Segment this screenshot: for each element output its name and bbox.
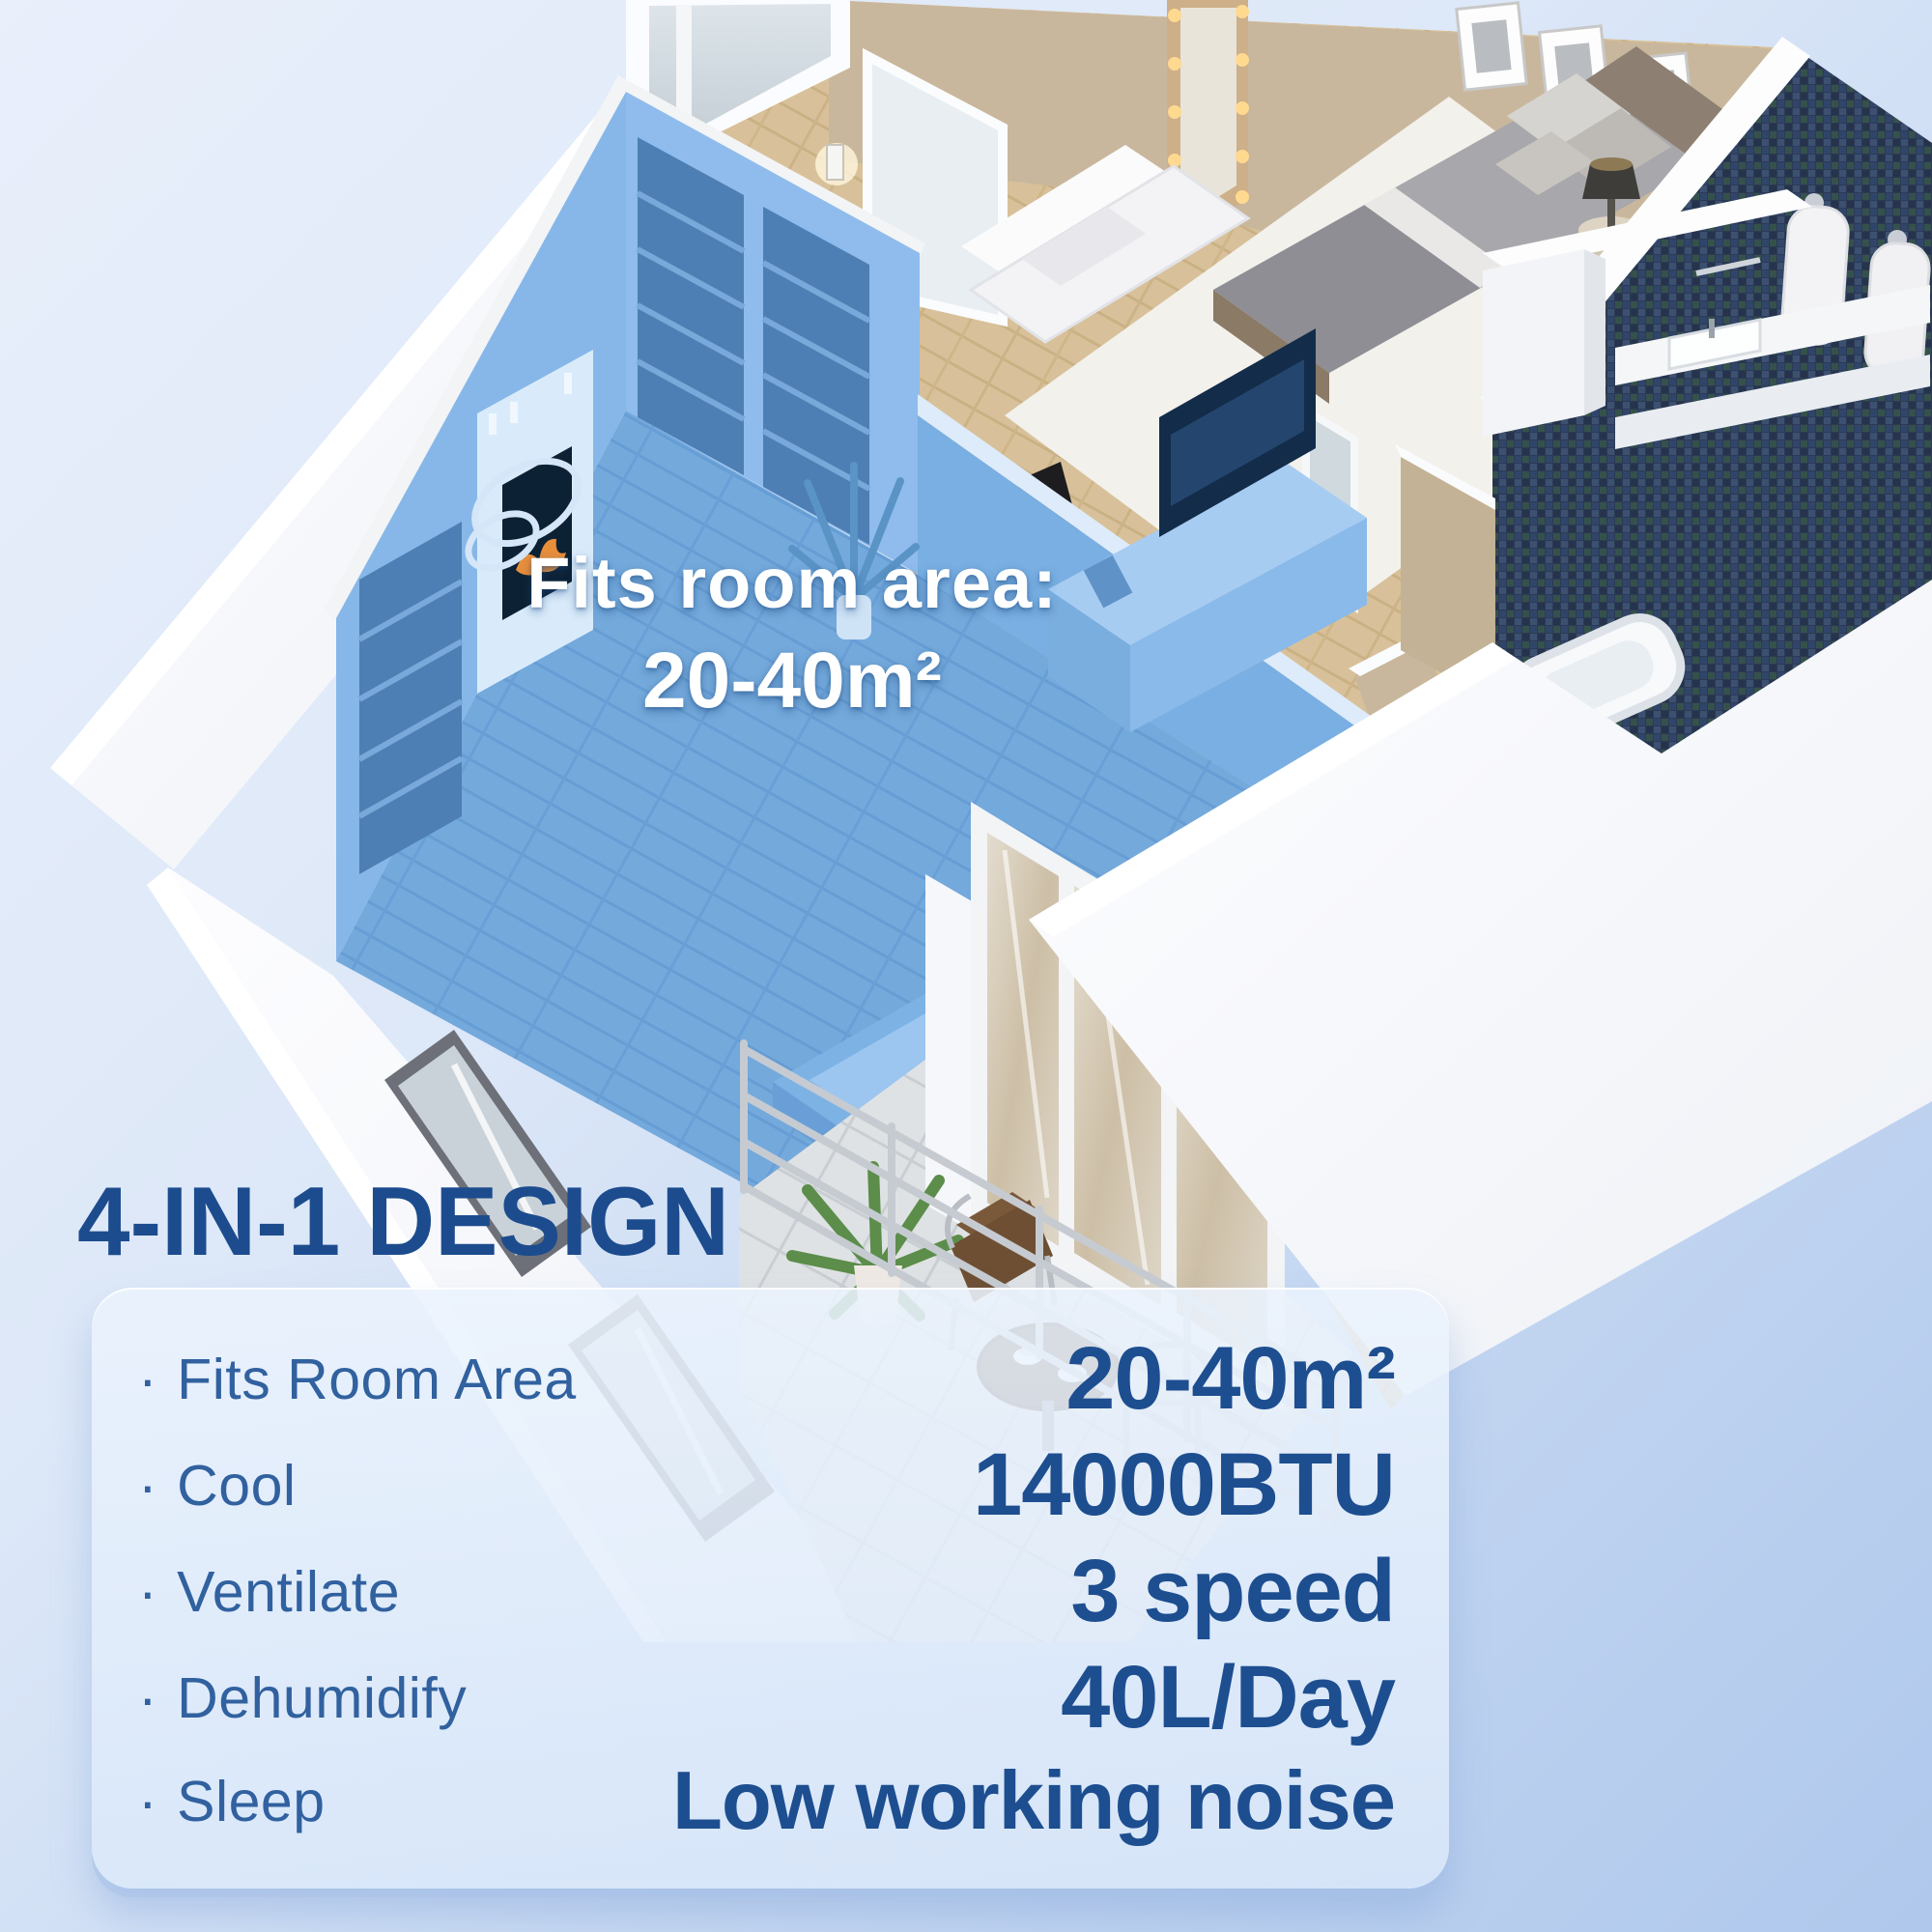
feature-value: 14000BTU — [973, 1435, 1395, 1536]
wall-sconce — [815, 143, 858, 185]
feature-label: ·Fits Room Area — [138, 1347, 577, 1412]
feature-label-text: Dehumidify — [177, 1665, 467, 1731]
feature-value: Low working noise — [672, 1754, 1395, 1849]
feature-value: 3 speed — [1070, 1541, 1395, 1642]
feature-row: ·Sleep Low working noise — [138, 1753, 1395, 1850]
feature-label-text: Sleep — [177, 1769, 325, 1834]
feature-row: ·Dehumidify 40L/Day — [138, 1647, 1395, 1748]
product-infographic: { "scene": { "overlay": { "title": "Fits… — [0, 0, 1932, 1932]
page-title: 4-IN-1 DESIGN — [77, 1167, 729, 1278]
bullet: · — [138, 1769, 157, 1834]
feature-row: ·Ventilate 3 speed — [138, 1541, 1395, 1642]
feature-label-text: Ventilate — [177, 1559, 400, 1625]
feature-value: 20-40m² — [1065, 1328, 1395, 1430]
floorplan-scene: Fits room area: 20-40m² 4-IN-1 DESIGN ·F… — [0, 0, 1932, 1932]
bullet: · — [138, 1559, 157, 1625]
feature-label: ·Dehumidify — [138, 1665, 467, 1731]
balcony-pillar — [925, 874, 972, 1232]
bullet: · — [138, 1665, 157, 1731]
feature-row: ·Cool 14000BTU — [138, 1435, 1395, 1536]
bookcase — [359, 522, 462, 874]
feature-label-text: Cool — [177, 1453, 296, 1519]
feature-value: 40L/Day — [1061, 1647, 1395, 1748]
bullet: · — [138, 1453, 157, 1519]
bullet: · — [138, 1347, 157, 1412]
feature-row: ·Fits Room Area 20-40m² — [138, 1328, 1395, 1430]
feature-label: ·Sleep — [138, 1769, 326, 1834]
feature-label-text: Fits Room Area — [177, 1347, 577, 1412]
bookcase — [638, 137, 744, 475]
spec-panel: ·Fits Room Area 20-40m² ·Cool 14000BTU ·… — [92, 1288, 1449, 1889]
feature-label: ·Ventilate — [138, 1559, 400, 1625]
feature-label: ·Cool — [138, 1453, 297, 1519]
